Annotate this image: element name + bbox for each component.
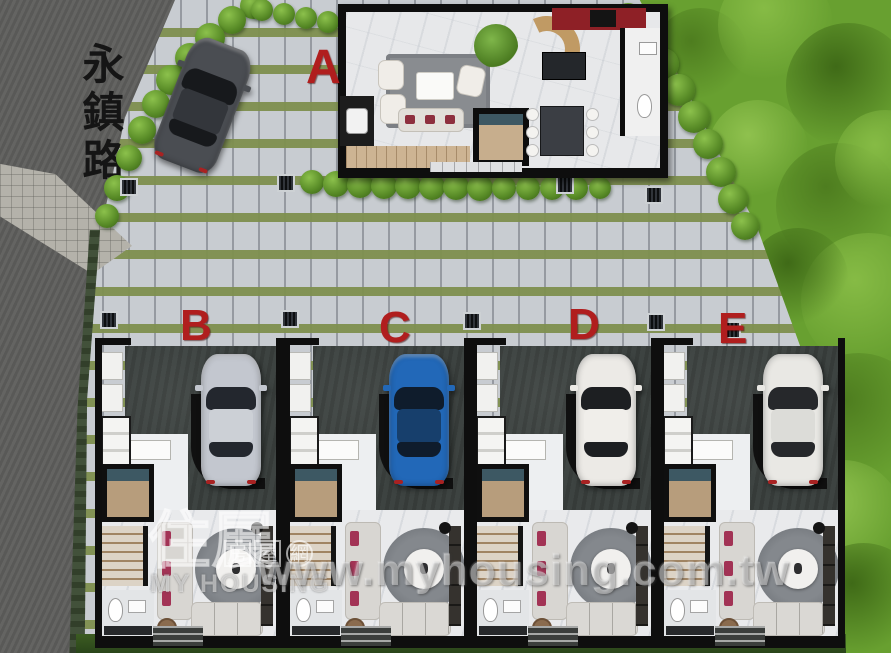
unit-c: [283, 338, 471, 648]
entry-steps: [715, 626, 765, 646]
closet: [289, 416, 319, 468]
bathroom-sink: [128, 600, 146, 613]
car-roof: [584, 409, 628, 443]
unit-label-b: B: [180, 304, 212, 348]
unit-label-c: C: [379, 306, 411, 350]
round-table: [216, 549, 256, 589]
car-taillight: [247, 480, 256, 484]
car-taillight: [622, 480, 631, 484]
car-windshield: [394, 387, 444, 410]
tv-cabinet: [449, 526, 461, 626]
car-taillight: [206, 480, 215, 484]
bathroom: [477, 590, 529, 636]
bathroom-sink: [690, 600, 708, 613]
shower-tiles: [479, 626, 527, 635]
parked-car: [389, 354, 449, 486]
wall: [657, 338, 664, 648]
bathroom-sink: [503, 600, 521, 613]
car-taillight: [394, 480, 403, 484]
staircase: [102, 526, 148, 586]
pillar: [661, 352, 685, 380]
unit-e: [657, 338, 845, 648]
car-taillight: [435, 480, 444, 484]
chaise-sofa: [532, 522, 568, 620]
chaise-sofa: [719, 522, 755, 620]
entry-steps: [341, 626, 391, 646]
floor-lamp: [251, 522, 263, 534]
elevator-shaft: [102, 464, 154, 522]
floor-lamp: [813, 522, 825, 534]
row-units-layer: [0, 0, 891, 653]
car-windshield: [768, 387, 818, 410]
elevator-door: [107, 469, 149, 481]
car-mirror: [195, 385, 203, 391]
round-table: [404, 549, 444, 589]
car-roof: [397, 409, 441, 443]
car-rear-window: [209, 442, 253, 457]
cushion: [350, 561, 359, 576]
car-rear-window: [771, 442, 815, 457]
elevator-shaft: [290, 464, 342, 522]
elevator-shaft: [477, 464, 529, 522]
pillar: [99, 352, 123, 380]
site-plan: 永鎮路: [0, 0, 891, 653]
bathroom: [102, 590, 154, 636]
table-decor: [794, 563, 802, 574]
cushion: [537, 591, 546, 606]
table-decor: [232, 563, 240, 574]
cushion: [537, 531, 546, 546]
parked-car: [763, 354, 823, 486]
wall: [657, 338, 693, 345]
car-rear-window: [397, 442, 441, 457]
wall: [470, 338, 477, 648]
tv-cabinet: [636, 526, 648, 626]
car-mirror: [447, 385, 455, 391]
wall: [95, 338, 102, 648]
car-mirror: [634, 385, 642, 391]
wall: [470, 338, 506, 345]
shower-tiles: [104, 626, 152, 635]
tv-cabinet: [823, 526, 835, 626]
wall: [95, 338, 131, 345]
unit-label-d: D: [568, 303, 600, 347]
car-taillight: [581, 480, 590, 484]
toilet: [483, 598, 498, 622]
tv-cabinet: [261, 526, 273, 626]
floor-lamp: [626, 522, 638, 534]
elevator-door: [482, 469, 524, 481]
car-roof: [771, 409, 815, 443]
cushion: [162, 531, 171, 546]
closet: [663, 416, 693, 468]
round-table: [591, 549, 631, 589]
cushion: [724, 591, 733, 606]
cushion: [350, 531, 359, 546]
floor-lamp: [439, 522, 451, 534]
elevator-door: [669, 469, 711, 481]
toilet: [108, 598, 123, 622]
entry-steps: [528, 626, 578, 646]
chaise-sofa: [157, 522, 193, 620]
wall: [283, 338, 290, 648]
elevator-shaft: [664, 464, 716, 522]
parked-car: [201, 354, 261, 486]
unit-b: [95, 338, 283, 648]
car-taillight: [809, 480, 818, 484]
pillar: [287, 352, 311, 380]
elevator-door: [295, 469, 337, 481]
cushion: [162, 591, 171, 606]
chaise-sofa: [345, 522, 381, 620]
car-mirror: [383, 385, 391, 391]
wall: [283, 338, 319, 345]
car-mirror: [821, 385, 829, 391]
bathroom-sink: [316, 600, 334, 613]
car-windshield: [581, 387, 631, 410]
car-mirror: [259, 385, 267, 391]
bathroom: [664, 590, 716, 636]
car-mirror: [757, 385, 765, 391]
car-rear-window: [584, 442, 628, 457]
parked-car: [576, 354, 636, 486]
pillar: [474, 384, 498, 412]
unit-label-a: A: [306, 44, 341, 92]
round-table: [778, 549, 818, 589]
wall: [276, 338, 283, 648]
bathroom: [290, 590, 342, 636]
pillar: [287, 384, 311, 412]
table-decor: [420, 563, 428, 574]
cushion: [162, 561, 171, 576]
closet: [101, 416, 131, 468]
staircase: [664, 526, 710, 586]
cushion: [537, 561, 546, 576]
car-roof: [209, 409, 253, 443]
table-decor: [607, 563, 615, 574]
toilet: [296, 598, 311, 622]
unit-d: [470, 338, 658, 648]
closet: [476, 416, 506, 468]
car-taillight: [768, 480, 777, 484]
wall: [838, 338, 845, 648]
cushion: [350, 591, 359, 606]
car-mirror: [570, 385, 578, 391]
shower-tiles: [666, 626, 714, 635]
unit-label-e: E: [718, 307, 747, 351]
staircase: [477, 526, 523, 586]
staircase: [290, 526, 336, 586]
pillar: [99, 384, 123, 412]
cushion: [724, 531, 733, 546]
pillar: [661, 384, 685, 412]
entry-steps: [153, 626, 203, 646]
shower-tiles: [292, 626, 340, 635]
cushion: [724, 561, 733, 576]
car-windshield: [206, 387, 256, 410]
pillar: [474, 352, 498, 380]
toilet: [670, 598, 685, 622]
